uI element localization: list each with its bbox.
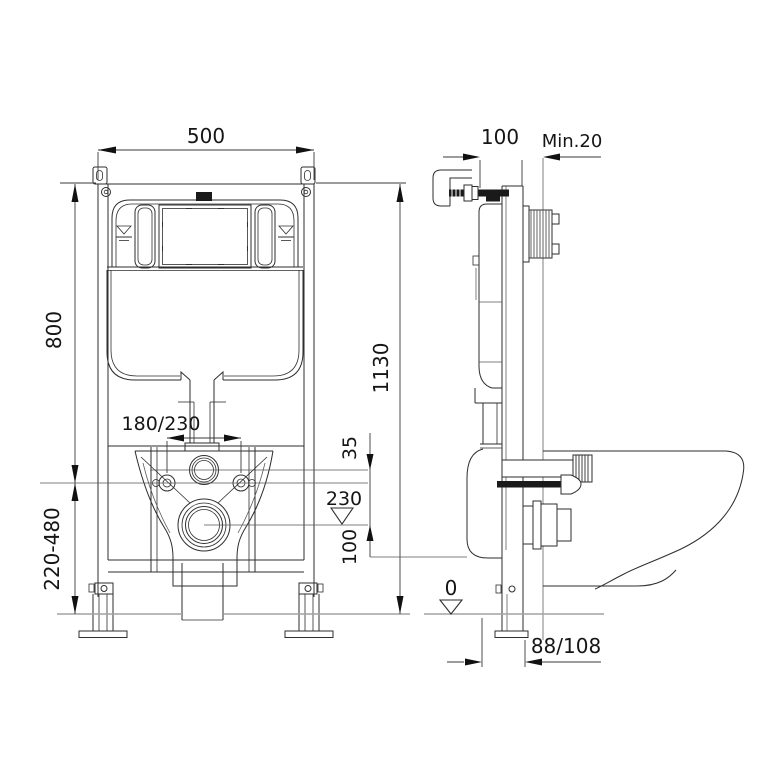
flush-plate-shaft (523, 206, 559, 262)
front-view-bowl (135, 451, 273, 620)
access-window (159, 205, 251, 268)
dimension-frame-depth: 100 (443, 125, 522, 188)
bolt-spacing-label: 180/230 (122, 413, 201, 435)
frame-width-label: 500 (187, 124, 225, 148)
drain-elbow (467, 449, 502, 558)
drain-connector (523, 501, 571, 549)
dimension-bolt-spacing: 180/230 (122, 413, 241, 473)
dimension-floor-level: 0 (440, 576, 462, 614)
dimension-upper-height: 800 (42, 183, 96, 483)
corner-bolt-left (102, 188, 111, 197)
dimension-total-height: 1130 (316, 183, 406, 614)
wall-tab-left (93, 167, 107, 184)
water-level-icon (116, 226, 132, 241)
filler-cap (196, 192, 212, 201)
funnel-notch-right (214, 372, 223, 380)
flush-bolt-gap-label: 35 (339, 436, 361, 460)
dimension-foot-range: 220-480 (40, 483, 79, 614)
drain-height-label: 230 (326, 488, 362, 510)
water-level-icon (278, 226, 294, 241)
foot-range-label: 220-480 (40, 507, 64, 591)
drain-distance-label: 88/108 (531, 634, 601, 658)
level-mark-icon (440, 600, 462, 614)
wall-bracket (433, 170, 509, 206)
cistern-side-profile (467, 204, 502, 558)
dimension-wall-min: Min.20 (542, 131, 603, 161)
level-mark-icon (331, 508, 353, 524)
front-view-frame (79, 167, 333, 638)
total-height-label: 1130 (369, 343, 393, 394)
dimension-drain-distance: 88/108 (447, 618, 601, 667)
bolt-drain-gap-label: 100 (339, 529, 361, 565)
adjustable-foot-right (285, 583, 333, 638)
floor-level-label: 0 (445, 576, 458, 600)
fixing-rod (497, 475, 581, 494)
funnel-notch-left (181, 372, 190, 380)
flush-connector (502, 455, 592, 482)
flush-pipe-flange (185, 443, 219, 451)
wall-min-label: Min.20 (542, 131, 603, 152)
technical-drawing-canvas: 500 800 220-480 1130 180/230 3 (0, 0, 780, 780)
adjustable-foot-left (79, 583, 127, 638)
corner-bolt-right (302, 188, 311, 197)
side-view (433, 158, 744, 640)
upper-height-label: 800 (42, 311, 66, 349)
dimension-frame-width: 500 (98, 124, 314, 180)
installation-frame-drawing: 500 800 220-480 1130 180/230 3 (0, 0, 780, 780)
wall-tab-right (301, 167, 315, 184)
frame-depth-label: 100 (481, 125, 519, 149)
